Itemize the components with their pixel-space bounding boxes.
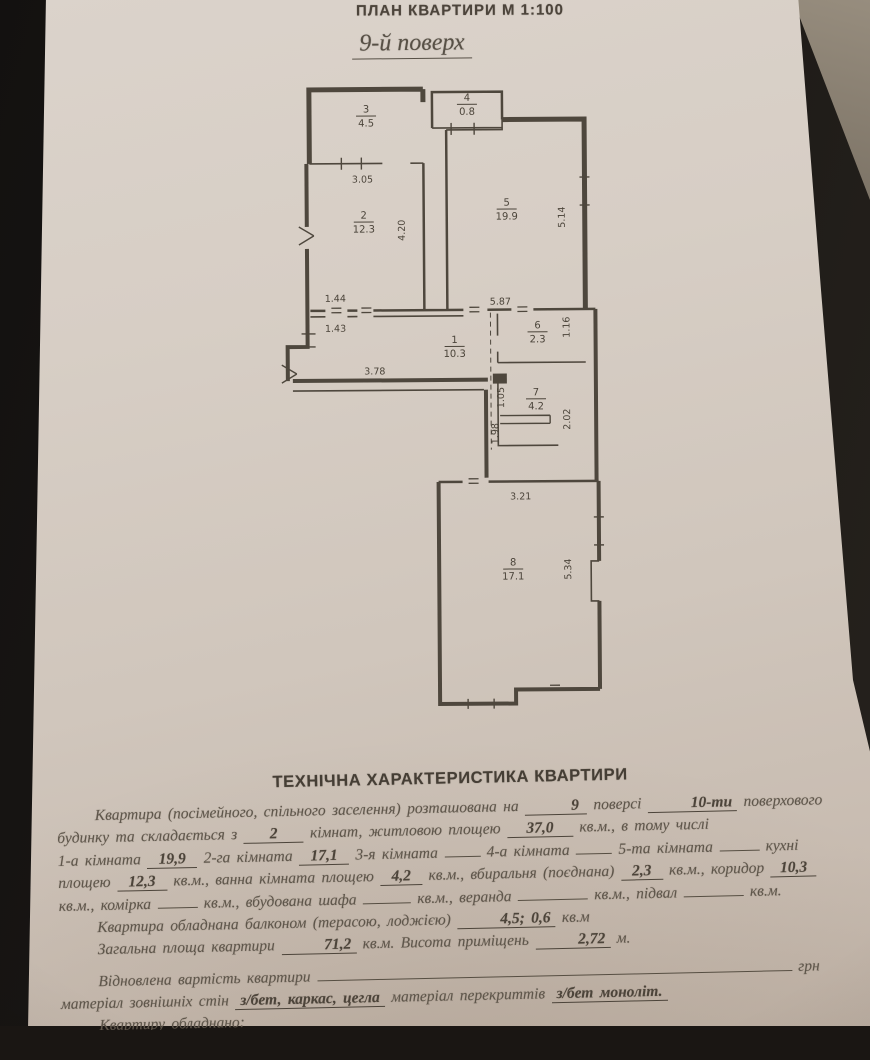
- tech-lines: Квартира (посімейного, спільного заселен…: [57, 789, 850, 1060]
- tech-filled-value: 12,3: [117, 873, 167, 892]
- photo-of-document: { "photo": { "background_color": "#1a161…: [0, 0, 870, 1026]
- tech-blank: [576, 838, 612, 855]
- dim-label: 3.78: [364, 366, 385, 377]
- tech-text: кв.м: [562, 908, 590, 926]
- dim-label: 5.14: [557, 207, 568, 228]
- tech-filled-value: 4,5; 0,6: [457, 909, 556, 929]
- svg-text:4.5: 4.5: [358, 118, 374, 129]
- svg-text:3: 3: [363, 105, 369, 116]
- tech-filled-value: 19,9: [147, 850, 197, 869]
- svg-text:8: 8: [510, 557, 516, 568]
- tech-blank: [683, 880, 743, 897]
- tech-text: м.: [616, 930, 630, 947]
- tech-filled-value: 10-ти: [648, 793, 738, 813]
- tech-filled-value: 10,3: [770, 858, 816, 877]
- tech-text: 2-га кімната: [203, 848, 292, 867]
- tech-text: кв.м., вбудована шафа: [204, 891, 357, 911]
- tech-text: водопроводом (холодним, гарячим), каналі…: [62, 1030, 539, 1057]
- tech-filled-value: 17,1: [299, 847, 349, 866]
- svg-text:17.1: 17.1: [502, 571, 524, 582]
- tech-text: 4-а кімната: [486, 842, 569, 861]
- dim-label: 5.87: [490, 297, 511, 308]
- tech-text: 1-а кімната: [58, 851, 141, 870]
- svg-text:19.9: 19.9: [496, 211, 518, 222]
- svg-text:2: 2: [361, 211, 367, 222]
- svg-text:10.3: 10.3: [444, 349, 466, 360]
- room-label: 212.3: [353, 210, 375, 235]
- room-label: 40.8: [457, 93, 477, 118]
- tech-blank: [157, 892, 197, 909]
- svg-text:7: 7: [533, 387, 539, 398]
- tech-text: кв.м., в тому числі: [579, 816, 709, 836]
- room-label: 62.3: [527, 320, 547, 345]
- tech-text: площею: [58, 874, 111, 892]
- tech-text: будинку та складається з: [57, 826, 237, 847]
- tech-filled-value: 2,3: [621, 862, 663, 881]
- tech-filled-value: 37,0: [507, 819, 573, 838]
- floor-label: 9-й поверх: [352, 29, 472, 59]
- dim-label: 5.34: [563, 559, 574, 580]
- svg-text:4: 4: [464, 93, 470, 104]
- tech-text: поверсі: [593, 795, 641, 813]
- svg-text:5: 5: [503, 198, 509, 209]
- document-content: ПЛАН КВАРТИРИ М 1:100 9-й поверх: [0, 0, 870, 1026]
- dim-label: 3.05: [352, 174, 373, 185]
- walls-exterior: [286, 162, 600, 705]
- room-label: 110.3: [443, 335, 465, 360]
- tech-text: кв.м., комірка: [59, 896, 152, 915]
- svg-text:0.8: 0.8: [459, 107, 475, 118]
- tech-text: 3-я кімната: [355, 845, 438, 864]
- tech-text: кімнат, житловою площею: [310, 820, 501, 841]
- room-label: 74.2: [526, 387, 546, 412]
- floor-plan: 34.540.8212.3519.9110.362.374.2817.1 3.0…: [246, 77, 640, 720]
- svg-text:6: 6: [534, 320, 540, 331]
- tech-text: кв.м. Висота приміщень: [363, 932, 529, 953]
- plan-title: ПЛАН КВАРТИРИ М 1:100: [300, 1, 620, 20]
- tech-filled-value: 2: [243, 825, 303, 844]
- svg-text:4.2: 4.2: [528, 401, 544, 412]
- bath-fixture: [500, 415, 550, 423]
- tech-text: кв.м., ванна кімната площею: [173, 868, 374, 889]
- svg-text:12.3: 12.3: [353, 224, 375, 235]
- tech-blank: [719, 835, 759, 852]
- tech-filled-value: 71,2: [281, 935, 356, 955]
- tech-text: поверхового: [743, 791, 822, 810]
- document-paper: ПЛАН КВАРТИРИ М 1:100 9-й поверх: [0, 0, 870, 1026]
- tech-text: Відновлена вартість квартири: [98, 968, 310, 990]
- dim-label: 3.21: [510, 491, 531, 502]
- tech-text: 5-та кімната: [618, 839, 713, 858]
- tech-filled-value: 9: [525, 796, 587, 815]
- wall-stub: [493, 374, 507, 384]
- tech-text: кв.м., підвал: [594, 884, 677, 903]
- tech-text: грн: [798, 957, 820, 974]
- dim-label: 1.16: [561, 317, 572, 338]
- tech-blank: [444, 841, 480, 858]
- dim-label: 2.02: [562, 409, 573, 430]
- dim-label: 1.44: [325, 294, 346, 305]
- tech-section: ТЕХНІЧНА ХАРАКТЕРИСТИКА КВАРТИРИ Квартир…: [56, 761, 850, 1060]
- walls-interior: [309, 91, 599, 483]
- dim-label: 1.05: [496, 387, 507, 408]
- room-label: 519.9: [495, 197, 517, 222]
- tech-filled-value: з/бет, каркас, цегла: [235, 989, 385, 1010]
- tech-text: Загальна площа квартири: [98, 937, 275, 958]
- svg-text:2.3: 2.3: [530, 334, 546, 345]
- tech-filled-value: з/бет моноліт.: [551, 983, 667, 1004]
- tech-text: кухні: [765, 837, 798, 855]
- dim-label: 4.20: [397, 220, 408, 241]
- svg-text:1: 1: [451, 335, 457, 346]
- tech-blank: [518, 883, 588, 901]
- tech-text: кв.м., коридор: [669, 860, 764, 879]
- tech-text: кв.м.: [750, 882, 782, 900]
- tech-filled-value: 2,72: [535, 930, 610, 950]
- room-label: 817.1: [502, 557, 524, 582]
- dim-label: 1.98: [490, 423, 501, 444]
- tech-blank: [363, 887, 411, 904]
- walls-thin: [291, 119, 599, 603]
- dim-label: 1.43: [325, 324, 346, 335]
- floor-plan-svg: 34.540.8212.3519.9110.362.374.2817.1 3.0…: [246, 77, 640, 720]
- tech-blank: [317, 955, 792, 981]
- tech-text: Квартиру обладнано:: [99, 1014, 245, 1034]
- tech-text: кв.м., вбиральня (поєднана): [428, 863, 614, 884]
- tech-text: матеріал перекриттів: [391, 985, 545, 1005]
- room-label: 34.5: [356, 104, 376, 129]
- tech-filled-value: 4,2: [380, 867, 422, 886]
- tech-text: матеріал зовнішніх стін: [61, 992, 229, 1013]
- tech-text: кв.м., веранда: [417, 888, 512, 907]
- room-labels: 34.540.8212.3519.9110.362.374.2817.1: [352, 92, 550, 583]
